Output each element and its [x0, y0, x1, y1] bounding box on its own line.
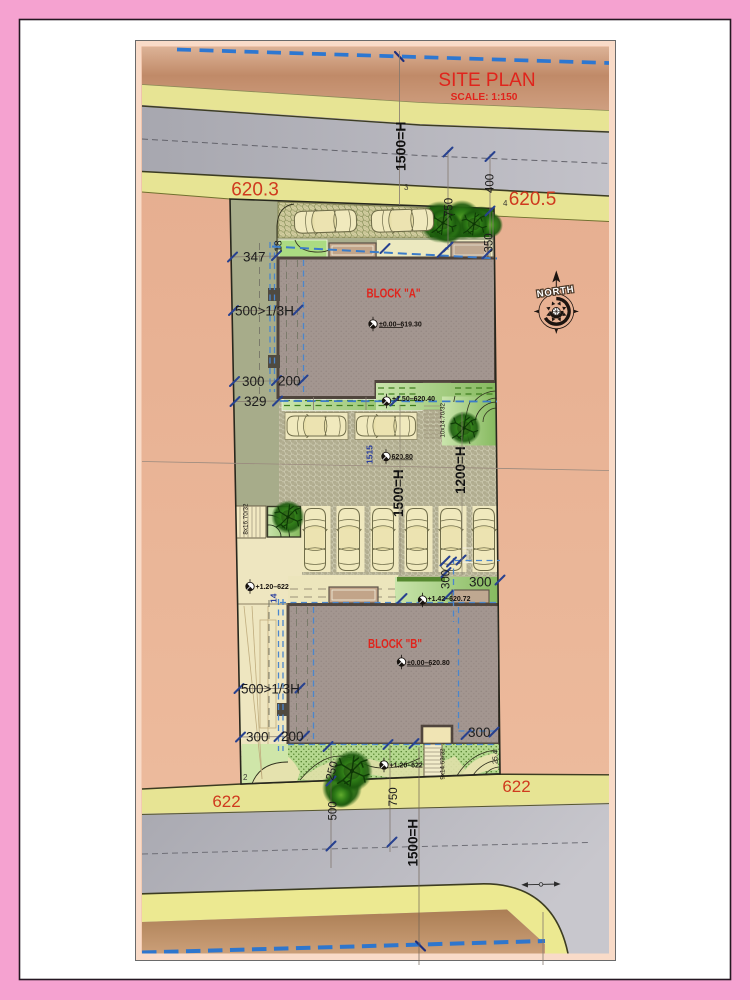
svg-text:1500=H: 1500=H: [391, 469, 406, 517]
svg-text:350: 350: [484, 233, 496, 252]
svg-text:BLOCK "B": BLOCK "B": [368, 637, 422, 651]
svg-text:300: 300: [242, 374, 265, 389]
svg-text:622: 622: [212, 792, 240, 811]
svg-text:8x16.70/32: 8x16.70/32: [243, 503, 250, 535]
svg-text:500>1/3H: 500>1/3H: [235, 304, 294, 319]
svg-text:18: 18: [273, 240, 285, 252]
svg-text:+1.20–622: +1.20–622: [390, 763, 423, 770]
svg-text:300: 300: [469, 575, 492, 590]
svg-text:500>1/3H: 500>1/3H: [241, 682, 300, 697]
svg-text:329: 329: [244, 394, 267, 409]
svg-text:1500=H: 1500=H: [406, 819, 421, 867]
svg-text:25.4: 25.4: [493, 750, 500, 764]
svg-text:300: 300: [468, 725, 491, 740]
svg-text:200: 200: [281, 729, 304, 744]
svg-text:+1.50–620.40: +1.50–620.40: [392, 396, 435, 403]
svg-text:3: 3: [404, 183, 409, 192]
svg-text:750: 750: [388, 787, 400, 806]
svg-text:SITE PLAN: SITE PLAN: [438, 70, 535, 91]
svg-text:750: 750: [444, 198, 456, 217]
svg-text:300: 300: [441, 570, 453, 589]
svg-text:1515: 1515: [365, 445, 375, 464]
svg-text:14: 14: [269, 593, 279, 603]
svg-text:347: 347: [243, 250, 266, 265]
svg-text:BLOCK "A": BLOCK "A": [367, 287, 421, 301]
svg-text:+1.42–620.72: +1.42–620.72: [428, 596, 471, 603]
svg-text:4: 4: [503, 199, 508, 208]
svg-text:2: 2: [243, 773, 248, 782]
svg-text:620.5: 620.5: [509, 189, 557, 210]
svg-text:622: 622: [502, 777, 530, 796]
svg-text:+1.20–622: +1.20–622: [256, 584, 289, 591]
svg-text:10x14.70/32: 10x14.70/32: [440, 402, 447, 437]
svg-text:500: 500: [328, 801, 340, 820]
svg-text:1500=H: 1500=H: [393, 122, 409, 171]
svg-text:SCALE: 1:150: SCALE: 1:150: [451, 92, 518, 103]
svg-text:400: 400: [485, 174, 497, 193]
svg-text:620.3: 620.3: [231, 180, 279, 201]
svg-text:1200=H: 1200=H: [453, 446, 468, 494]
svg-text:300: 300: [246, 730, 269, 745]
svg-text:9x14.63/32: 9x14.63/32: [440, 748, 447, 780]
svg-text:200: 200: [278, 374, 301, 389]
